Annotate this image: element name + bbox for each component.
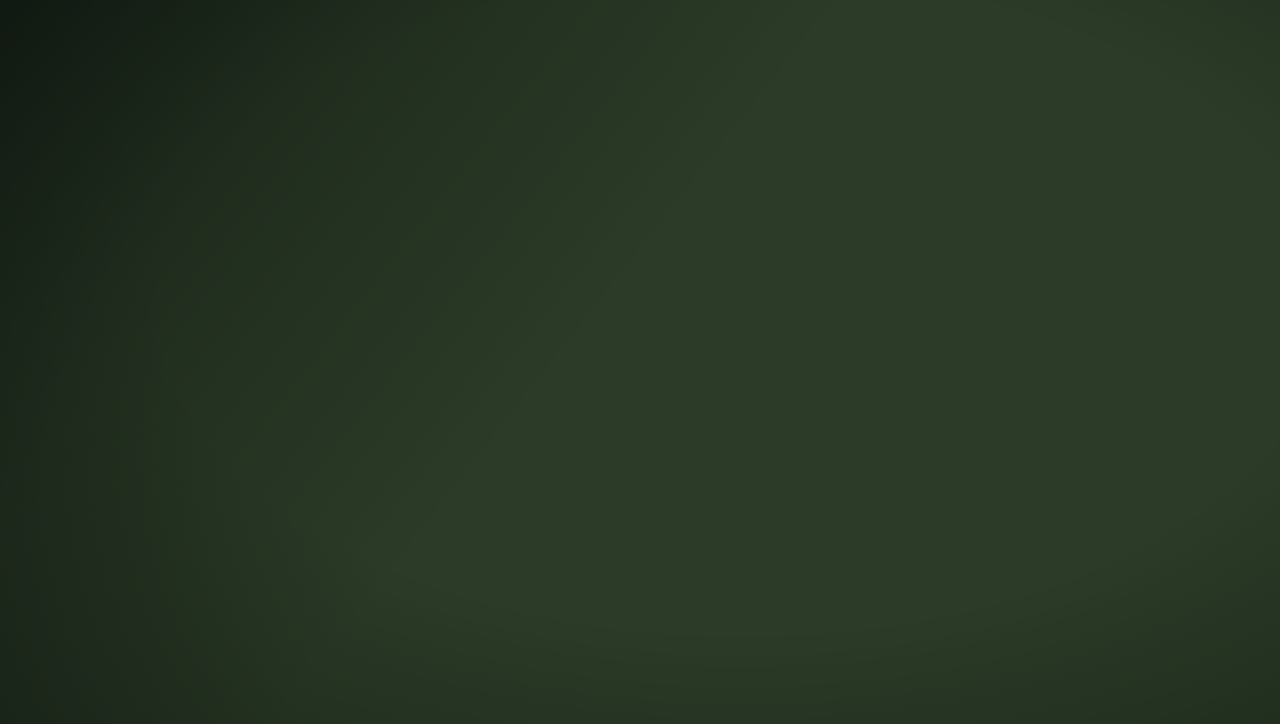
aerial-scene [0, 0, 1280, 724]
masterplan-rendering [0, 0, 1280, 724]
